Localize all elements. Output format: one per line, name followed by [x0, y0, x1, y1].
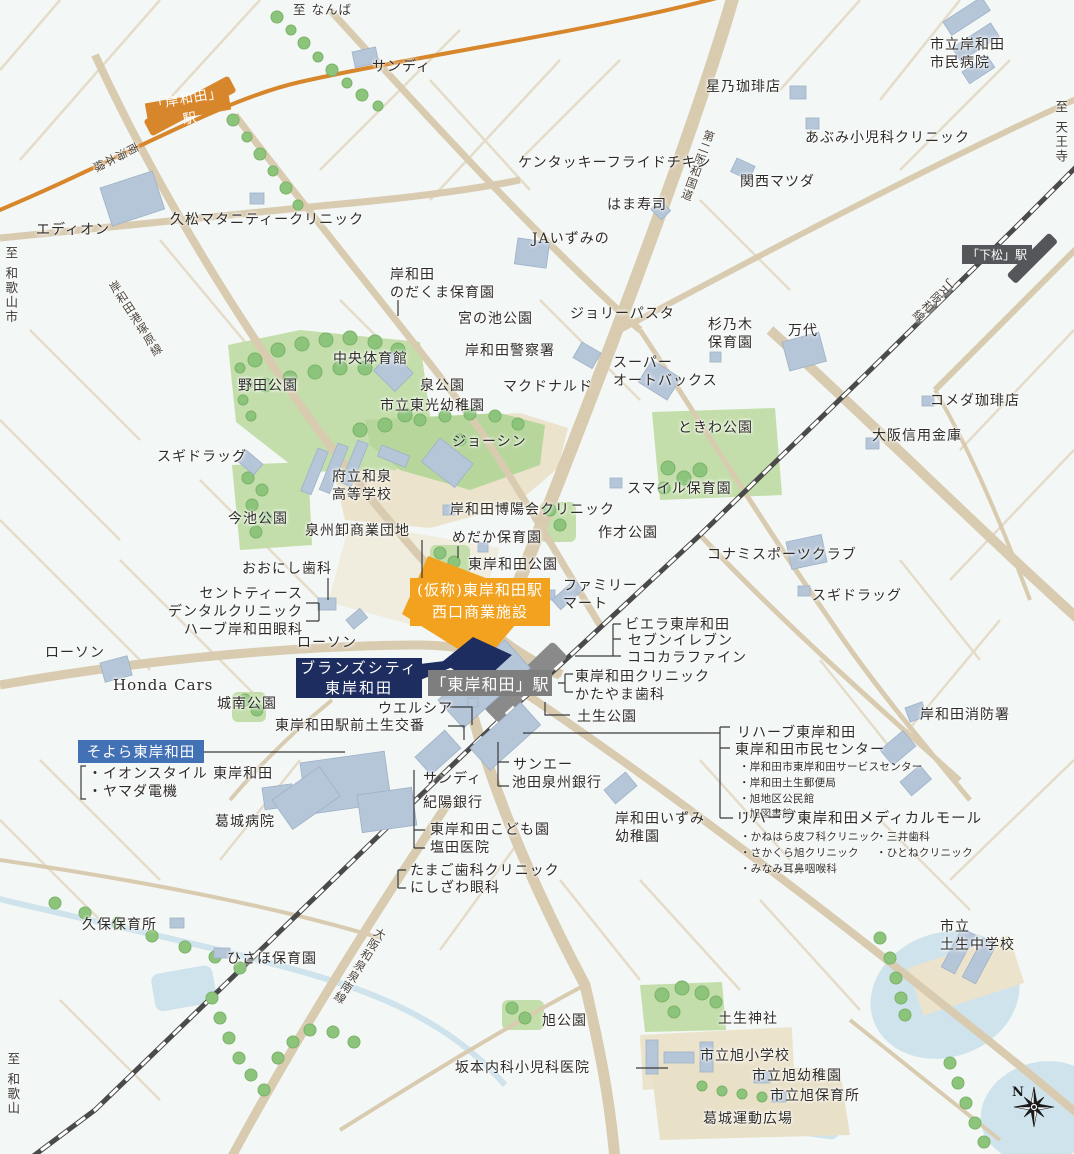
label-sandy-south: サンディ	[423, 770, 482, 788]
label-mcdonalds: マクドナルド	[503, 378, 593, 396]
label-noda-park: 野田公園	[238, 377, 298, 395]
label-hisaho-hoikuen: ひさほ保育園	[227, 950, 317, 968]
label-ikeda-senshu-bank: 池田泉州銀行	[512, 774, 602, 792]
label-higashi-kishiwada-park: 東岸和田公園	[468, 556, 558, 574]
label-fire-department: 岸和田消防署	[920, 706, 1010, 724]
label-cent-teeth-group: セントティース デンタルクリニック ハーブ岸和田眼科	[140, 585, 303, 640]
label-ekimae-koban: 東岸和田駅前土生交番	[275, 717, 425, 735]
label-hisamatsu-maternity: 久松マタニティークリニック	[170, 211, 364, 229]
label-aeon-yamada: ・イオンスタイル 東岸和田 ・ヤマダ電機	[88, 765, 273, 801]
label-mandai: 万代	[788, 322, 818, 340]
direction-wakayama-city: 至 和歌山市	[2, 246, 18, 324]
label-jolly-pasta: ジョリーパスタ	[570, 305, 675, 323]
label-hk-clinic: 東岸和田クリニック	[575, 668, 710, 686]
project-label: (仮称)東岸和田駅 西口商業施設	[410, 578, 550, 626]
label-edion: エディオン	[36, 221, 110, 239]
label-katsuragi-hospital: 葛城病院	[215, 813, 275, 831]
label-mall-list-col1: ・かねはら皮フ科クリニック ・さかくら旭クリニック ・みなみ耳鼻咽喉科	[740, 830, 880, 877]
label-ja-izumino: JAいずみの	[532, 230, 610, 248]
label-super-autobacs: スーパー オートバックス	[613, 354, 718, 390]
label-katayama-dental: かたやま歯科	[575, 686, 665, 704]
label-konami-sports: コナミスポーツクラブ	[707, 546, 857, 564]
map-canvas	[0, 0, 1074, 1154]
label-seven-eleven: セブンイレブン	[628, 632, 733, 650]
label-sanei: サンエー	[513, 756, 573, 774]
label-cocokara-fine: ココカラファイン	[627, 649, 747, 667]
label-kentucky: ケンタッキーフライドチキン	[518, 154, 711, 172]
label-asahi-hoikusho: 市立旭保育所	[770, 1087, 860, 1105]
compass-star-icon	[1012, 1085, 1056, 1129]
label-katsuragi-ground: 葛城運動広場	[703, 1110, 793, 1128]
label-habu-junior-high: 市立 土生中学校	[940, 918, 1015, 954]
label-smile-hoikuen: スマイル保育園	[627, 480, 732, 498]
label-senshu-oroshi: 泉州卸商業団地	[305, 522, 410, 540]
area-map: 至 なんば 至 天王寺 至 和歌山市 至 和歌山 南海本線 JR阪和線 第二阪和…	[0, 0, 1074, 1154]
label-medaka-hoikuen: めだか保育園	[452, 529, 542, 547]
label-nodakuma-hoikuen: 岸和田 のだくま保育園	[390, 266, 495, 302]
compass-rose: N	[1012, 1085, 1024, 1100]
label-rehab-hk: リハーブ東岸和田	[737, 724, 856, 742]
soyora-label: そよら東岸和田	[78, 740, 204, 763]
label-tamago-dental: たまご歯科クリニック	[410, 862, 560, 880]
label-sakamoto-clinic: 坂本内科小児科医院	[455, 1059, 590, 1077]
label-kubo-hoikusho: 久保保育所	[82, 916, 157, 934]
higashi-kishiwada-station-label: 「東岸和田」駅	[428, 670, 552, 696]
label-sugi-drug-west: スギドラッグ	[157, 448, 247, 466]
label-oonishi-dental: おおにし歯科	[242, 560, 332, 578]
label-kansai-matsuda: 関西マツダ	[740, 173, 815, 191]
label-tokiwa-park: ときわ公園	[678, 419, 753, 437]
label-kiyo-bank: 紀陽銀行	[423, 794, 483, 812]
label-komeda-coffee: コメダ珈琲店	[930, 392, 1020, 410]
label-shimin-center: 東岸和田市民センター	[735, 741, 885, 759]
label-sandy-north: サンディ	[372, 58, 431, 76]
label-shioda-clinic: 塩田医院	[430, 839, 490, 857]
label-hoshino-coffee: 星乃珈琲店	[706, 78, 781, 96]
nankai-line	[0, 0, 728, 212]
label-miyanoike-park: 宮の池公園	[458, 310, 533, 328]
label-osaka-shinkin: 大阪信用金庫	[872, 427, 962, 445]
label-sugi-drug-east: スギドラッグ	[812, 587, 902, 605]
label-honda-cars: Honda Cars	[113, 676, 213, 696]
label-asahi-kindergarten: 市立旭幼稚園	[752, 1067, 842, 1085]
label-habu-shrine: 土生神社	[718, 1010, 778, 1028]
brands-city-label: ブランズシティ 東岸和田	[296, 658, 422, 698]
label-lawson-west: ローソン	[45, 644, 105, 662]
label-izumi-kindergarten: 岸和田いずみ 幼稚園	[615, 810, 705, 846]
label-asahi-elementary: 市立旭小学校	[700, 1047, 790, 1065]
label-city-hospital: 市立岸和田 市民病院	[930, 36, 1005, 72]
label-family-mart: ファミリー マート	[563, 577, 638, 613]
label-lawson-center: ローソン	[297, 634, 357, 652]
label-chuo-gym: 中央体育館	[333, 350, 408, 368]
label-nishizawa-eye: にしざわ眼科	[410, 879, 500, 897]
direction-tennoji: 至 天王寺	[1052, 100, 1068, 164]
kishiwada-station-label: 「岸和田」駅	[145, 89, 231, 124]
label-izumi-high-school: 府立和泉 高等学校	[332, 468, 392, 504]
label-jonan-park: 城南公園	[217, 695, 277, 713]
label-imaike-park: 今池公園	[228, 510, 288, 528]
label-toko-kindergarten: 市立東光幼稚園	[380, 397, 485, 415]
label-hamazushi: はま寿司	[607, 196, 667, 214]
label-rehab-medical-mall: リハーブ東岸和田メディカルモール	[736, 810, 982, 829]
label-suginoki-hoikuen: 杉乃木 保育園	[708, 316, 753, 352]
label-kodomoen: 東岸和田こども園	[430, 821, 550, 839]
shimomatsu-station-label: 「下松」駅	[962, 245, 1032, 264]
label-abumi-clinic: あぶみ小児科クリニック	[805, 129, 970, 147]
label-asahi-park: 旭公園	[542, 1012, 587, 1030]
direction-wakayama: 至 和歌山	[4, 1052, 20, 1116]
direction-namba: 至 なんば	[293, 2, 352, 18]
label-kishiwada-police: 岸和田警察署	[465, 342, 555, 360]
label-sakusai-park: 作才公園	[598, 524, 658, 542]
label-welcia: ウエルシア	[378, 700, 453, 718]
label-hakuyokai-clinic: 岸和田博陽会クリニック	[450, 501, 615, 519]
label-habu-park: 土生公園	[577, 708, 637, 726]
label-izumi-park: 泉公園	[420, 377, 465, 395]
label-joshin: ジョーシン	[452, 433, 527, 451]
label-mall-list-col2: ・三井歯科 ・ひとねクリニック	[876, 830, 973, 862]
